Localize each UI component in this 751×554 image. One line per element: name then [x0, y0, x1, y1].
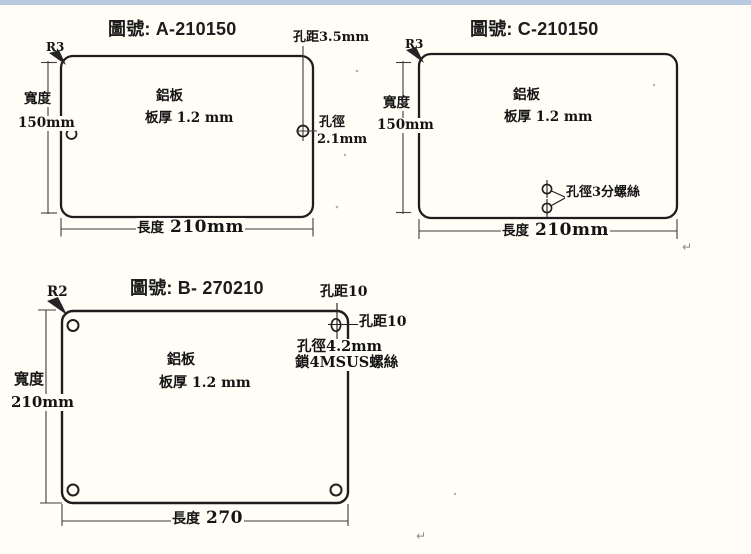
drawing-a-length-value: 210mm [170, 218, 244, 237]
drawing-b-corner-radius-label: R2 [46, 285, 69, 300]
drawing-b-length-label: 長度 [172, 512, 200, 528]
drawing-b-hole-pitch-top-label: 孔距10 [319, 285, 368, 301]
drawing-b-hole-dia-label: 孔徑4.2mm [296, 339, 383, 355]
drawing-c-title: 圖號: C-210150 [470, 15, 598, 41]
drawing-b-screw-note-label: 鎖4MSUS螺絲 [294, 355, 399, 371]
drawing-b-geometry [38, 297, 358, 526]
plate-c-hole-note-leader-top [552, 191, 567, 198]
scanned-drawing-page: 圖號: A-210150 R3 孔距3.5mm 鋁板 板厚 1.2 mm 孔徑 … [0, 0, 751, 554]
drawing-b-material-label: 鋁板 [166, 353, 196, 369]
drawing-c-length-value: 210mm [535, 221, 609, 240]
drawing-b-hole-pitch-right-label: 孔距10 [358, 315, 407, 331]
plate-b-hole-top-left [68, 320, 79, 331]
drawing-c-material-label: 鋁板 [512, 88, 541, 103]
drawing-a-material-label: 鋁板 [155, 89, 184, 104]
plate-b-hole-bottom-right [331, 485, 342, 496]
drawing-b-thickness-label: 板厚 1.2 mm [158, 376, 252, 392]
drawing-b-length-dim: 長度 270 [171, 509, 244, 528]
drawing-c-width-value: 150mm [376, 118, 435, 133]
drawing-b-width-value: 210mm [10, 394, 75, 411]
paragraph-mark: ↵ [682, 240, 692, 254]
drawing-c-thickness-label: 板厚 1.2 mm [503, 110, 593, 125]
drawing-c-length-label: 長度 [502, 224, 529, 239]
drawing-a-width-value: 150mm [17, 116, 76, 131]
scan-specks [336, 70, 656, 496]
drawing-a-hole-dia-label: 孔徑 [318, 116, 346, 131]
drawing-a-geometry [41, 46, 317, 237]
drawing-c-corner-radius-label: R3 [404, 38, 424, 51]
drawing-a-corner-radius-label: R3 [45, 41, 65, 54]
drawing-b-width-label: 寬度 [13, 371, 45, 388]
drawing-a-hole-pitch-label: 孔距3.5mm [292, 31, 370, 46]
drawing-geometry [0, 0, 751, 554]
drawing-c-width-label: 寬度 [382, 96, 411, 111]
plate-b-hole-bottom-left [68, 485, 79, 496]
drawing-c-geometry [396, 47, 677, 239]
drawing-a-length-dim: 長度 210mm [136, 218, 245, 237]
drawing-c-length-dim: 長度 210mm [501, 221, 610, 240]
drawing-b-length-value: 270 [206, 509, 243, 528]
paragraph-mark: ↵ [416, 529, 426, 543]
drawing-c-hole-note-label: 孔徑3分螺絲 [565, 186, 641, 201]
drawing-a-hole-dia-value: 2.1mm [316, 133, 368, 148]
plate-c-hole-note-leader-bottom [552, 198, 567, 206]
drawing-a-thickness-label: 板厚 1.2 mm [144, 111, 234, 126]
drawing-a-title: 圖號: A-210150 [108, 15, 236, 41]
drawing-b-title: 圖號: B- 270210 [130, 274, 264, 300]
drawing-a-width-label: 寬度 [23, 92, 52, 107]
plate-a-outline [61, 56, 313, 217]
drawing-a-length-label: 長度 [137, 221, 164, 236]
